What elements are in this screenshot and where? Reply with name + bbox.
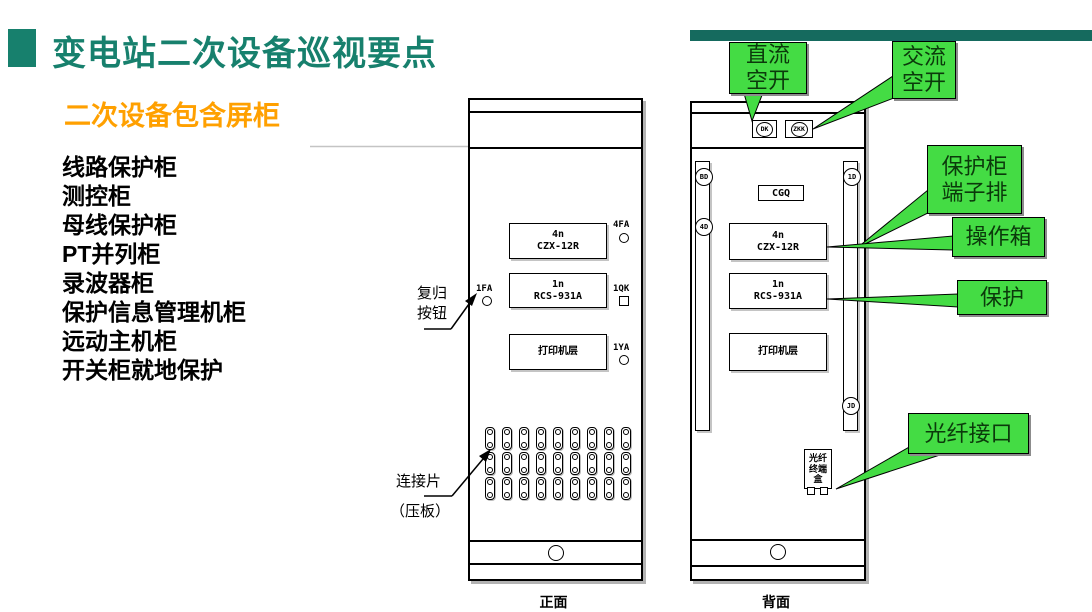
pressure-plate <box>553 452 563 475</box>
pressure-plate <box>485 427 495 450</box>
fiber-box-text: 盒 <box>813 474 822 485</box>
dk-label: DK <box>756 122 773 137</box>
back-cabinet-top-line <box>692 112 864 114</box>
pressure-plate <box>604 452 614 475</box>
list-item: 保护信息管理机柜 <box>62 298 246 327</box>
module-label: 4n <box>552 229 564 241</box>
indicator-label-1qk: 1QK <box>613 284 629 294</box>
list-item: 远动主机柜 <box>62 327 246 356</box>
header-bar <box>690 30 1092 41</box>
terminal-tag-4d: 4D <box>695 218 713 236</box>
pressure-plate-sublabel: （压板） <box>390 502 450 522</box>
fiber-box-text: 光纤 <box>809 453 827 464</box>
pressure-plate <box>587 452 597 475</box>
front-cabinet-top-line <box>470 111 641 113</box>
pressure-plate <box>570 452 580 475</box>
module-label: CZX-12R <box>757 242 799 254</box>
reset-button-1fa <box>482 296 492 306</box>
cabinet-list: 线路保护柜测控柜母线保护柜PT并列柜录波器柜保护信息管理机柜远动主机柜开关柜就地… <box>62 153 246 385</box>
reset-label-line1: 复归 <box>417 284 447 304</box>
pressure-plate <box>621 452 631 475</box>
terminal-tag-1d: 1D <box>843 168 861 186</box>
pressure-plate <box>587 427 597 450</box>
pressure-plate <box>570 427 580 450</box>
module-label: RCS-931A <box>754 291 802 303</box>
list-item: 开关柜就地保护 <box>62 356 246 385</box>
back-lock-circle <box>770 544 786 560</box>
list-item: 测控柜 <box>62 182 246 211</box>
back-bottom-line1 <box>692 539 864 541</box>
fiber-terminal-box: 光纤 终端 盒 <box>804 449 832 489</box>
module-label: 打印机层 <box>538 346 578 358</box>
pressure-plate <box>621 427 631 450</box>
back-cabinet-header-line <box>692 147 864 149</box>
module-label: RCS-931A <box>534 291 582 303</box>
callout-operation-box: 操作箱 <box>952 217 1045 257</box>
callout-text: 直流 <box>746 42 790 68</box>
callout-text: 保护柜 <box>941 154 1007 180</box>
indicator-label-4fa: 4FA <box>613 220 629 230</box>
slide: 变电站二次设备巡视要点 二次设备包含屏柜 线路保护柜测控柜母线保护柜PT并列柜录… <box>0 0 1092 612</box>
pressure-plate <box>536 477 546 500</box>
pressure-plate <box>604 477 614 500</box>
ac-breaker-zkk: ZKK <box>785 120 813 138</box>
pressure-plate-label: 连接片 <box>396 472 441 492</box>
pressure-plate <box>587 477 597 500</box>
module-label: 1n <box>552 279 564 291</box>
fiber-connector <box>807 487 815 495</box>
back-cabinet: DK ZKK BD 4D 1D JD CGQ 4n CZX-12R 1n RCS… <box>690 101 866 581</box>
indicator-label-1ya: 1YA <box>613 343 629 353</box>
pressure-plate <box>604 427 614 450</box>
list-item: 线路保护柜 <box>62 153 246 182</box>
list-item: PT并列柜 <box>62 240 246 269</box>
terminal-tag-bd: BD <box>695 168 713 186</box>
callout-text: 空开 <box>902 70 946 96</box>
front-operation-module: 4n CZX-12R <box>509 223 607 259</box>
list-item: 录波器柜 <box>62 269 246 298</box>
pressure-plate <box>621 477 631 500</box>
indicator-lamp-4fa <box>619 233 629 243</box>
pressure-plate <box>536 427 546 450</box>
right-terminal-strip <box>843 161 858 431</box>
front-bottom-line1 <box>470 540 641 542</box>
front-cabinet-header-line <box>470 147 641 149</box>
pressure-plate <box>519 477 529 500</box>
reset-label-line2: 按钮 <box>417 304 447 324</box>
pressure-plate <box>519 427 529 450</box>
callout-ac-breaker: 交流 空开 <box>892 41 956 99</box>
pressure-plate <box>553 427 563 450</box>
indicator-lamp-1ya <box>619 355 629 365</box>
front-protection-module: 1n RCS-931A <box>509 273 607 308</box>
callout-text: 光纤接口 <box>924 421 1012 447</box>
callout-dc-breaker: 直流 空开 <box>729 42 807 94</box>
callout-terminal-block: 保护柜 端子排 <box>927 145 1022 214</box>
pressure-plate <box>485 452 495 475</box>
back-bottom-line2 <box>692 565 864 567</box>
zkk-label: ZKK <box>791 122 808 137</box>
pressure-plate <box>502 477 512 500</box>
pressure-plate <box>502 452 512 475</box>
pressure-plate <box>502 427 512 450</box>
pressure-plate <box>536 452 546 475</box>
back-operation-module: 4n CZX-12R <box>729 223 827 260</box>
cgq-box: CGQ <box>758 185 804 201</box>
callout-protection: 保护 <box>957 280 1047 315</box>
pressure-plate <box>570 477 580 500</box>
switch-1qk <box>619 296 629 306</box>
fiber-connector <box>820 487 828 495</box>
page-title: 变电站二次设备巡视要点 <box>52 26 437 75</box>
callout-tail-terminal <box>857 190 928 248</box>
callout-text: 交流 <box>902 44 946 70</box>
pressure-plate-grid <box>481 427 634 502</box>
front-caption: 正面 <box>468 592 639 612</box>
back-protection-module: 1n RCS-931A <box>729 273 827 309</box>
module-label: 打印机层 <box>758 346 798 358</box>
front-cabinet: 4n CZX-12R 1n RCS-931A 打印机层 4FA 1FA 1QK … <box>468 98 643 581</box>
front-printer-module: 打印机层 <box>509 334 607 370</box>
back-printer-module: 打印机层 <box>729 333 827 371</box>
front-lock-circle <box>548 545 564 561</box>
dc-breaker-dk: DK <box>752 120 777 138</box>
callout-text: 操作箱 <box>965 224 1031 250</box>
back-caption: 背面 <box>690 592 862 612</box>
callout-text: 端子排 <box>941 180 1007 206</box>
front-bottom-line2 <box>470 563 641 565</box>
callout-text: 保护 <box>980 285 1024 311</box>
title-accent-square <box>8 29 36 67</box>
module-label: CZX-12R <box>537 241 579 253</box>
callout-text: 空开 <box>746 68 790 94</box>
left-terminal-strip <box>695 161 710 431</box>
pressure-plate <box>485 477 495 500</box>
subtitle: 二次设备包含屏柜 <box>64 94 280 133</box>
terminal-tag-jd: JD <box>842 397 860 415</box>
module-label: 4n <box>772 230 784 242</box>
pressure-plate <box>553 477 563 500</box>
fiber-box-text: 终端 <box>809 464 827 475</box>
list-item: 母线保护柜 <box>62 211 246 240</box>
callout-fiber-port: 光纤接口 <box>908 413 1029 454</box>
reset-button-label: 复归 按钮 <box>417 284 447 324</box>
pressure-plate <box>519 452 529 475</box>
module-label: 1n <box>772 279 784 291</box>
indicator-label-1fa: 1FA <box>476 284 492 294</box>
